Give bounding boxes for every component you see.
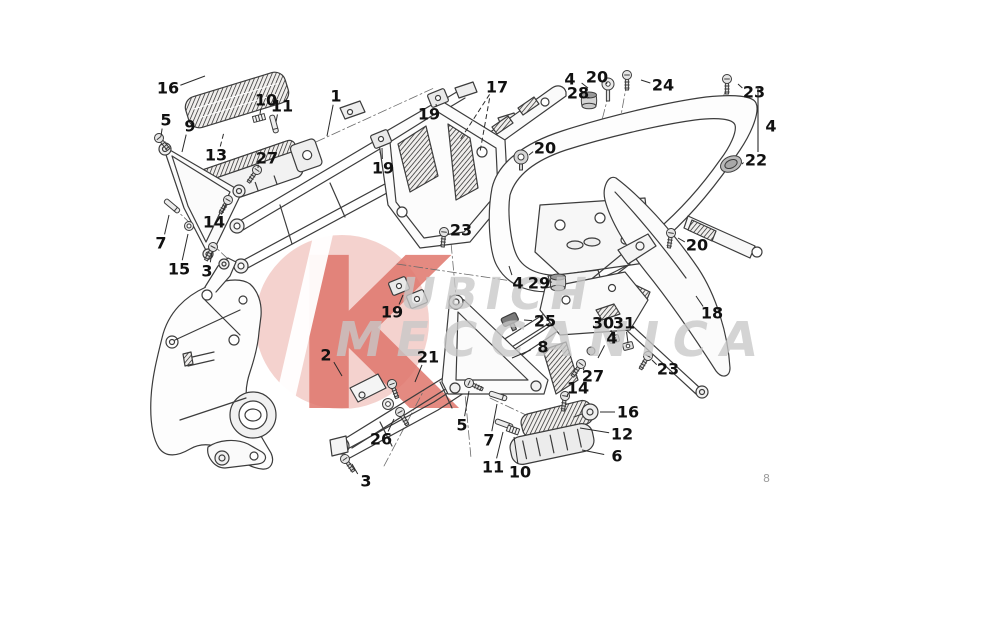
- callout-22: 22: [745, 151, 767, 170]
- callout-21: 21: [417, 348, 439, 367]
- fastener-washer-26: [383, 399, 394, 410]
- leader-line-11: [497, 432, 503, 458]
- callout-14: 14: [203, 213, 225, 232]
- callout-2: 2: [320, 346, 331, 365]
- callout-23: 23: [657, 360, 679, 379]
- callout-20: 20: [686, 236, 708, 255]
- callout-5: 5: [160, 111, 171, 130]
- callout-3: 3: [360, 472, 371, 491]
- callout-7: 7: [155, 234, 166, 253]
- fastener-spring-front-10: [252, 114, 265, 123]
- leader-line-23: [738, 84, 742, 88]
- callout-4: 4: [765, 117, 776, 136]
- callout-24: 24: [652, 76, 674, 95]
- callout-20: 20: [586, 68, 608, 87]
- parts-diagram-page: K: [0, 0, 1000, 628]
- callout-8: 8: [537, 338, 548, 357]
- leader-line-22: [742, 162, 744, 164]
- callout-11: 11: [271, 97, 293, 116]
- callout-4: 4: [512, 274, 523, 293]
- leader-line-23: [448, 233, 449, 234]
- callout-19: 19: [418, 105, 440, 124]
- callout-29: 29: [528, 274, 550, 293]
- fastener-spring-rear-10: [506, 425, 519, 435]
- callout-6: 6: [611, 447, 622, 466]
- callout-5: 5: [456, 416, 467, 435]
- leader-line-25: [524, 320, 532, 321]
- leader-line-11: [276, 114, 277, 122]
- callout-1: 1: [330, 87, 341, 106]
- leader-line-24: [641, 80, 650, 83]
- fastener-pin-front-7: [163, 198, 180, 213]
- callout-14: 14: [567, 379, 589, 398]
- fastener-nut-15: [185, 222, 194, 231]
- callout-11: 11: [482, 458, 504, 477]
- callout-28: 28: [567, 84, 589, 103]
- callout-17: 17: [486, 78, 508, 97]
- callout-16: 16: [617, 403, 639, 422]
- callout-7: 7: [483, 431, 494, 450]
- callout-25: 25: [534, 312, 556, 331]
- fastener-screw-top-23: [723, 75, 732, 95]
- callout-27: 27: [256, 149, 278, 168]
- callout-3: 3: [201, 262, 212, 281]
- leader-line-7: [492, 404, 497, 431]
- callout-19: 19: [381, 303, 403, 322]
- leader-line-1: [327, 105, 333, 136]
- callout-18: 18: [701, 304, 723, 323]
- leader-line-9: [182, 135, 186, 152]
- callout-10: 10: [509, 463, 531, 482]
- callout-16: 16: [157, 79, 179, 98]
- page-number: 8: [763, 472, 770, 485]
- fastener-screw-24: [623, 71, 632, 91]
- callout-9: 9: [184, 117, 195, 136]
- callout-19: 19: [372, 159, 394, 178]
- exploded-parts-diagram: K: [0, 0, 1000, 628]
- callout-23: 23: [743, 83, 765, 102]
- leader-line-16: [180, 76, 205, 85]
- leader-line-7: [165, 215, 169, 234]
- left-mount-bracket: [151, 258, 276, 469]
- callout-4: 4: [606, 329, 617, 348]
- leader-line-15: [182, 234, 188, 260]
- leader-line-5: [465, 391, 469, 416]
- callout-20: 20: [534, 139, 556, 158]
- callout-12: 12: [611, 425, 633, 444]
- leader-line-13: [220, 132, 224, 146]
- callout-13: 13: [205, 146, 227, 165]
- callout-15: 15: [168, 260, 190, 279]
- callout-23: 23: [450, 221, 472, 240]
- leader-line-6: [582, 450, 604, 454]
- callout-26: 26: [370, 430, 392, 449]
